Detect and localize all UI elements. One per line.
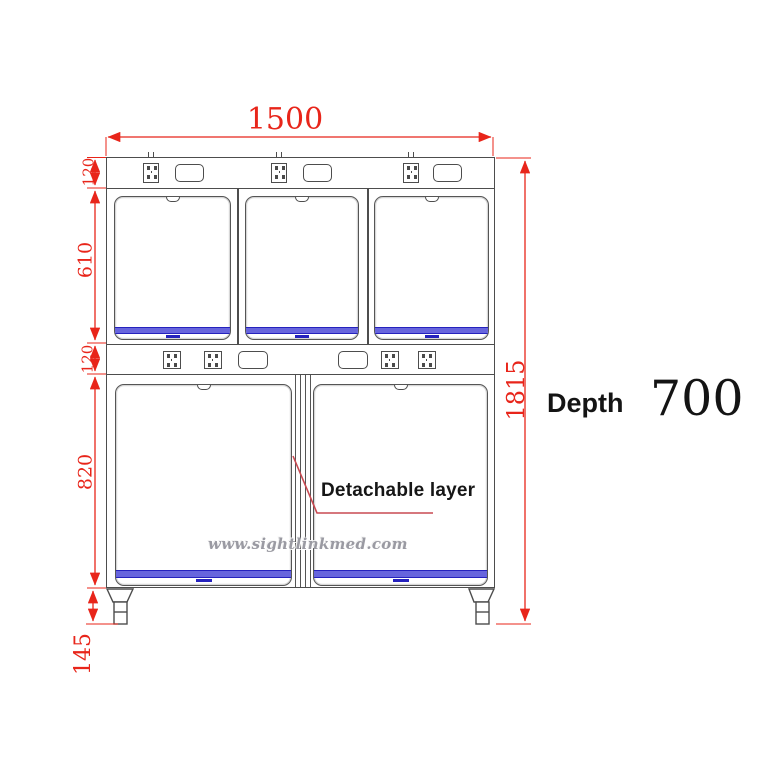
- caster-right: [476, 602, 489, 624]
- depth-label: Depth: [547, 388, 624, 419]
- dim-leg-height: 145: [73, 633, 95, 675]
- vent-panel-icon: [433, 164, 462, 182]
- vent-panel-icon: [303, 164, 332, 182]
- power-socket-icon: [143, 163, 159, 183]
- detachable-layer-callout: Detachable layer: [321, 480, 475, 502]
- dim-top-panel-height: 120: [82, 158, 97, 187]
- top-panel: [107, 158, 494, 189]
- power-socket-icon: [204, 351, 222, 369]
- center-divider-line: [310, 375, 311, 587]
- leg-left: [107, 589, 133, 602]
- door-latch-notch: [425, 196, 439, 202]
- center-divider-line: [305, 375, 306, 587]
- middle-panel: [107, 344, 494, 375]
- power-socket-icon: [271, 163, 287, 183]
- power-socket-icon: [418, 351, 436, 369]
- vent-panel-icon: [238, 351, 268, 369]
- door-latch-notch: [166, 196, 180, 202]
- dim-total-width: 1500: [235, 105, 335, 135]
- door-latch-notch: [394, 384, 408, 390]
- dim-total-height: 1815: [504, 359, 528, 420]
- dim-middle-panel-height: 120: [81, 345, 96, 374]
- hinge-tick: [281, 152, 282, 157]
- tray-strip: [314, 570, 487, 578]
- vent-panel-icon: [175, 164, 204, 182]
- hinge-tick: [276, 152, 277, 157]
- power-socket-icon: [381, 351, 399, 369]
- hinge-tick: [148, 152, 149, 157]
- watermark: www.sightlinkmed.com: [208, 535, 403, 553]
- tray-handle: [295, 335, 309, 338]
- center-divider-line: [295, 375, 296, 587]
- depth-value: 700: [650, 374, 744, 423]
- center-divider-line: [300, 375, 301, 587]
- drawing-canvas: 1500 120 610 120 820 145 1815 Depth 700 …: [0, 0, 768, 768]
- tray-handle: [393, 579, 409, 582]
- tray-strip: [375, 327, 488, 334]
- upper-row-divider: [237, 189, 239, 344]
- upper-cage-door-1: [114, 196, 231, 340]
- cabinet-outline: [106, 157, 495, 588]
- lower-cage-door-left: [115, 384, 292, 586]
- vent-panel-icon: [338, 351, 368, 369]
- door-latch-notch: [295, 196, 309, 202]
- dim-lower-cage-height: 820: [77, 454, 96, 490]
- hinge-tick: [408, 152, 409, 157]
- hinge-tick: [413, 152, 414, 157]
- power-socket-icon: [163, 351, 181, 369]
- leg-right: [469, 589, 494, 602]
- tray-handle: [166, 335, 180, 338]
- dim-upper-cage-height: 610: [77, 242, 96, 278]
- caster-left: [114, 602, 127, 624]
- tray-handle: [196, 579, 212, 582]
- upper-row-divider: [367, 189, 369, 344]
- power-socket-icon: [403, 163, 419, 183]
- tray-handle: [425, 335, 439, 338]
- tray-strip: [116, 570, 291, 578]
- tray-strip: [246, 327, 358, 334]
- tray-strip: [115, 327, 230, 334]
- door-latch-notch: [197, 384, 211, 390]
- upper-cage-door-2: [245, 196, 359, 340]
- upper-cage-door-3: [374, 196, 489, 340]
- hinge-tick: [153, 152, 154, 157]
